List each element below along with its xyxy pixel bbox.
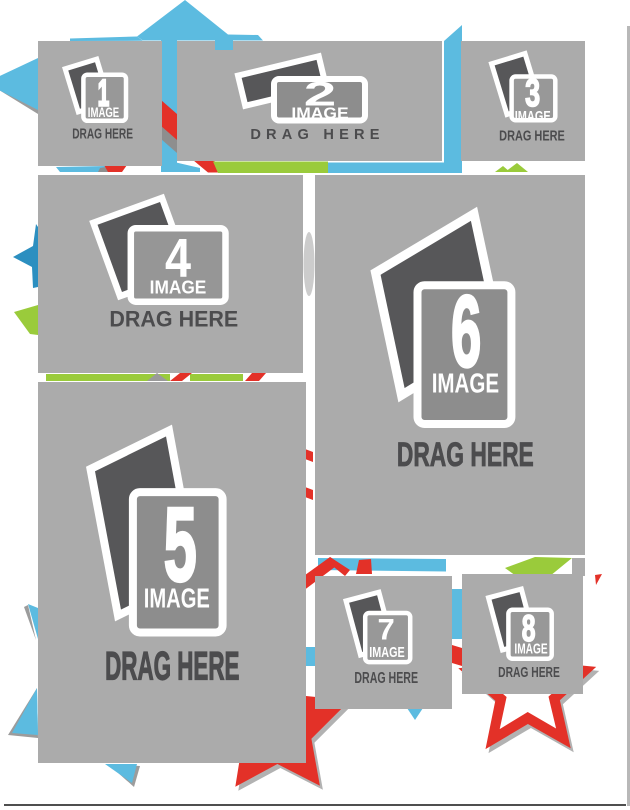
svg-text:DRAG HERE: DRAG HERE <box>354 669 418 687</box>
svg-text:7: 7 <box>378 614 395 646</box>
svg-text:IMAGE: IMAGE <box>291 104 348 122</box>
svg-text:IMAGE: IMAGE <box>514 639 547 657</box>
svg-text:IMAGE: IMAGE <box>369 643 405 660</box>
svg-text:IMAGE: IMAGE <box>150 277 207 298</box>
svg-text:DRAG HERE: DRAG HERE <box>397 435 534 474</box>
svg-text:IMAGE: IMAGE <box>515 107 551 124</box>
svg-text:DRAG HERE: DRAG HERE <box>499 127 565 144</box>
svg-text:DRAG HERE: DRAG HERE <box>250 127 384 143</box>
svg-text:IMAGE: IMAGE <box>432 369 499 400</box>
svg-text:IMAGE: IMAGE <box>88 104 119 120</box>
svg-text:DRAG HERE: DRAG HERE <box>498 663 560 680</box>
svg-text:DRAG HERE: DRAG HERE <box>72 126 133 142</box>
svg-text:IMAGE: IMAGE <box>144 583 210 614</box>
svg-text:DRAG HERE: DRAG HERE <box>109 306 238 331</box>
svg-text:DRAG HERE: DRAG HERE <box>105 644 239 688</box>
